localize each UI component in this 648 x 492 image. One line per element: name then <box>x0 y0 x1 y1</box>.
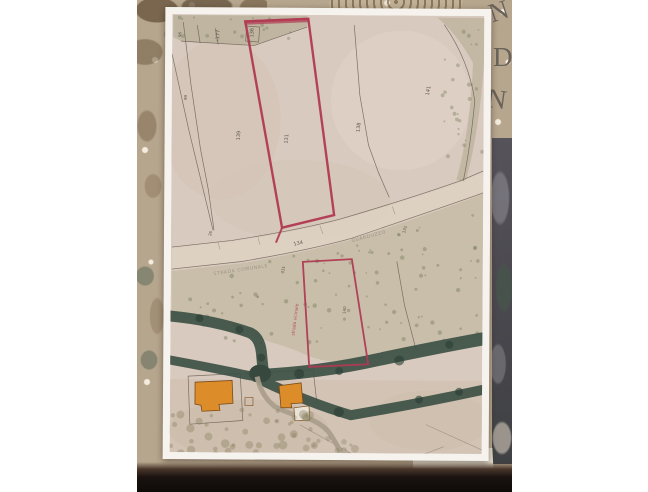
speckle <box>347 309 350 312</box>
speckle <box>402 337 406 341</box>
speckle <box>444 59 446 61</box>
speckle <box>230 444 236 450</box>
speckle <box>265 26 268 29</box>
speckle <box>268 260 271 263</box>
speckle <box>263 417 270 424</box>
speckle <box>368 251 370 253</box>
speckle <box>314 279 318 283</box>
speckle <box>455 118 459 122</box>
speckle <box>181 18 183 20</box>
lace-ornament-left <box>137 96 165 396</box>
speckle <box>370 249 372 251</box>
speckle <box>196 418 203 425</box>
parcel-number: 177 <box>215 30 221 40</box>
speckle <box>245 441 253 449</box>
speckle <box>456 288 460 292</box>
speckle <box>303 414 310 421</box>
speckle <box>457 133 460 136</box>
speckle <box>205 34 209 38</box>
speckle <box>172 422 177 427</box>
speckle <box>303 445 310 452</box>
speckle <box>453 112 457 116</box>
speckle <box>335 294 337 296</box>
speckle <box>419 274 423 278</box>
speckle <box>421 316 423 318</box>
speckle <box>270 332 274 336</box>
speckle <box>459 327 462 330</box>
speckle <box>176 411 184 419</box>
speckle <box>387 252 390 255</box>
speckle <box>416 229 419 232</box>
parcel-number: 140 <box>342 306 348 315</box>
speckle <box>248 413 251 416</box>
speckle <box>375 270 379 274</box>
speckle <box>290 420 294 424</box>
speckle <box>462 143 466 147</box>
speckle <box>292 255 295 258</box>
map-paper: 961771369913913113814126131431140 STRADA… <box>163 7 492 461</box>
speckle <box>366 295 368 297</box>
speckle <box>351 445 359 453</box>
speckle <box>471 214 474 217</box>
speckle <box>284 299 288 303</box>
speckle <box>400 322 402 324</box>
parcel-number: 131 <box>284 134 291 144</box>
speckle <box>341 439 347 445</box>
speckle <box>462 30 466 34</box>
speckle <box>276 409 280 413</box>
speckle <box>261 303 263 305</box>
speckle <box>451 78 455 82</box>
speckle <box>240 34 244 38</box>
speckle <box>256 442 262 448</box>
speckle <box>397 233 400 236</box>
table-shadow <box>137 462 512 492</box>
speckle <box>400 255 404 259</box>
speckle <box>311 442 318 449</box>
speckle <box>320 327 322 329</box>
speckle <box>343 318 346 321</box>
speckle <box>475 314 478 317</box>
photo: NDN <box>137 0 512 492</box>
speckle <box>468 97 472 101</box>
speckle <box>467 34 471 38</box>
cadastral-map: 961771369913913113814126131431140 STRADA… <box>170 14 485 454</box>
speckle <box>178 16 182 20</box>
speckle <box>273 443 279 449</box>
speckle <box>436 264 439 267</box>
speckle <box>231 296 234 299</box>
speckle <box>262 28 265 31</box>
speckle <box>475 277 477 279</box>
speckle <box>460 277 462 279</box>
speckle <box>443 120 445 122</box>
speckle <box>278 441 287 450</box>
speckle <box>221 312 223 314</box>
speckle <box>296 281 299 284</box>
speckle <box>473 246 477 250</box>
speckle <box>242 429 248 435</box>
photo-canvas: NDN <box>0 0 648 492</box>
speckle <box>441 93 445 97</box>
speckle <box>325 436 330 441</box>
speckle <box>367 326 370 329</box>
speckle <box>480 150 484 154</box>
speckle <box>239 304 243 308</box>
speckle <box>376 281 379 284</box>
speckle <box>204 433 212 441</box>
speckle <box>327 308 332 313</box>
speckle <box>443 90 447 94</box>
speckle <box>438 330 443 335</box>
speckle <box>312 303 317 308</box>
speckle <box>316 439 320 443</box>
speckle <box>233 339 236 342</box>
speckle <box>465 140 467 142</box>
speckle <box>221 439 230 448</box>
speckle <box>340 254 343 257</box>
speckle <box>415 323 419 327</box>
speckle <box>400 248 403 251</box>
speckle <box>225 427 229 431</box>
speckle <box>188 297 192 301</box>
speckle <box>385 321 388 324</box>
speckle <box>457 128 459 130</box>
speckle <box>335 448 340 453</box>
speckle <box>467 82 471 86</box>
speckle <box>470 43 472 45</box>
speckle <box>316 340 319 343</box>
speckle <box>340 447 347 454</box>
speckle <box>422 266 426 270</box>
speckle <box>193 16 195 18</box>
speckle <box>370 251 373 254</box>
speckle <box>239 408 244 413</box>
speckle <box>457 113 459 115</box>
speckle <box>430 320 434 324</box>
speckle <box>233 30 236 33</box>
speckle <box>478 29 480 31</box>
speckle <box>171 413 176 418</box>
speckle <box>450 106 454 110</box>
speckle <box>356 244 358 246</box>
speckle <box>414 288 417 291</box>
speckle <box>418 316 420 318</box>
speckle <box>230 18 232 20</box>
speckle <box>224 336 228 340</box>
speckle <box>252 17 254 19</box>
parcel-number: 138 <box>356 122 363 132</box>
speckle <box>348 285 351 288</box>
speckle <box>210 414 213 417</box>
speckle <box>384 303 387 306</box>
speckle <box>365 272 367 274</box>
speckle <box>422 253 424 255</box>
speckle <box>379 328 381 330</box>
speckle <box>470 260 472 262</box>
speckle <box>419 227 421 229</box>
speckle <box>322 269 325 272</box>
speckle <box>212 308 216 312</box>
speckle <box>423 247 427 251</box>
speckle <box>323 263 325 265</box>
speckle <box>475 43 478 46</box>
speckle <box>328 272 330 274</box>
speckle <box>424 275 426 277</box>
speckle <box>475 87 478 90</box>
tablecloth-letter: D <box>493 42 512 73</box>
speckle <box>459 268 462 271</box>
parcel-number: 136 <box>249 28 255 38</box>
speckle <box>287 37 290 40</box>
speckle <box>278 433 286 441</box>
speckle <box>456 63 460 67</box>
parcel-number: 96 <box>177 31 182 37</box>
speckle <box>200 306 202 308</box>
speckle <box>205 423 209 427</box>
speckle <box>186 424 194 432</box>
speckle <box>189 439 194 444</box>
speckle <box>290 430 298 438</box>
speckle <box>308 427 312 431</box>
speckle <box>206 302 209 305</box>
parcel-number: 139 <box>236 131 243 141</box>
speckle <box>239 292 241 294</box>
speckle <box>275 419 279 423</box>
speckle <box>307 306 309 308</box>
speckle <box>392 310 396 314</box>
speckle <box>476 259 480 263</box>
parcel-number: 99 <box>183 94 188 100</box>
speckle <box>446 154 450 158</box>
speckle <box>306 437 311 442</box>
red-parcel-upper-top-smear <box>244 19 309 22</box>
neighboring-photo-edge <box>492 138 512 464</box>
speckle <box>336 252 339 255</box>
speckle <box>292 415 297 420</box>
speckle <box>256 295 259 298</box>
speckle <box>213 447 218 452</box>
speckle <box>358 250 360 252</box>
